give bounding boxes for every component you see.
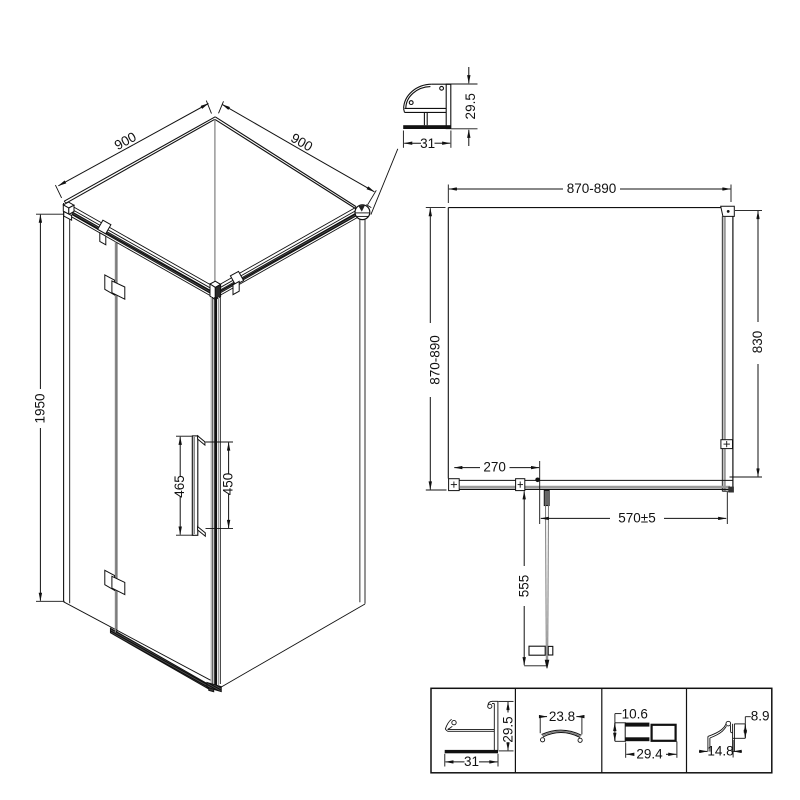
svg-text:830: 830 xyxy=(750,331,765,354)
svg-text:870-890: 870-890 xyxy=(567,181,617,196)
svg-text:270: 270 xyxy=(483,460,506,475)
svg-text:31: 31 xyxy=(420,136,435,151)
svg-text:14.8: 14.8 xyxy=(707,744,733,759)
svg-text:29.5: 29.5 xyxy=(463,93,478,119)
svg-text:23.8: 23.8 xyxy=(549,709,575,724)
svg-text:29.5: 29.5 xyxy=(500,716,515,742)
svg-text:31: 31 xyxy=(464,754,479,769)
svg-text:1950: 1950 xyxy=(32,393,47,423)
svg-text:450: 450 xyxy=(221,473,236,496)
svg-text:870-890: 870-890 xyxy=(428,335,443,385)
svg-text:10.6: 10.6 xyxy=(622,707,648,722)
svg-text:555: 555 xyxy=(516,575,531,598)
svg-text:465: 465 xyxy=(172,475,187,498)
svg-text:29.4: 29.4 xyxy=(636,746,663,761)
svg-text:570±5: 570±5 xyxy=(618,511,655,526)
svg-text:8.9: 8.9 xyxy=(751,709,770,724)
